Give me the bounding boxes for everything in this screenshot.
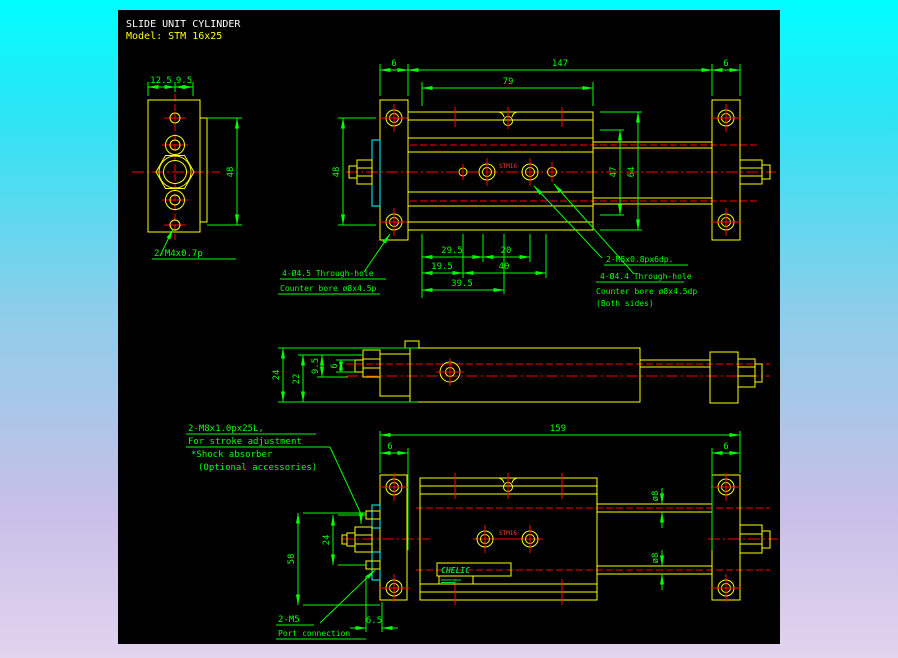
- dim-24-ports: 24: [322, 535, 332, 546]
- dim-20: 20: [501, 246, 512, 256]
- label-counterbore-right-2: Counter bore ø8x4.5dp: [596, 287, 697, 296]
- dim-24-side: 24: [272, 370, 282, 381]
- dim-6-5: 6.5: [366, 616, 382, 626]
- label-adjuster-2: For stroke adjustment: [188, 437, 302, 447]
- dim-48-end: 48: [226, 167, 236, 178]
- front-view: STM16: [278, 59, 776, 308]
- port-face-hatch: [372, 140, 380, 206]
- cad-canvas[interactable]: SLIDE UNIT CYLINDER Model: STM 16x25: [118, 10, 780, 644]
- port-face-hatch-lower: [372, 552, 380, 580]
- dim-6-left-bottom: 6: [387, 442, 392, 452]
- dim-159: 159: [550, 424, 566, 434]
- dim-64: 64: [627, 167, 637, 178]
- side-view: 24 22 9.5 6: [272, 341, 770, 403]
- dim-6-right: 6: [723, 59, 728, 69]
- body-marking: STM16: [499, 163, 517, 170]
- cylinder-body: [408, 112, 593, 230]
- dim-79: 79: [503, 77, 514, 87]
- label-counterbore-left-2: Counter bore ø8x4.5p: [280, 284, 377, 293]
- port-upper: [366, 511, 380, 519]
- dim-9-5: 9.5: [176, 76, 192, 86]
- dim-47: 47: [609, 167, 619, 178]
- label-counterbore-right-1: 4-Ø4.4 Through-hole: [600, 271, 692, 281]
- dim-29-5: 29.5: [441, 246, 463, 256]
- product-title: SLIDE UNIT CYLINDER: [126, 19, 241, 30]
- label-thread-m5: 2-M5x0.8px6dp.: [606, 255, 673, 264]
- label-counterbore-left-1: 4-Ø4.5 Through-hole: [282, 268, 374, 278]
- label-thread-m4: 2-M4x0.7p: [154, 249, 203, 259]
- dim-22: 22: [292, 374, 302, 385]
- dim-58: 58: [287, 554, 297, 565]
- label-adjuster-3: *Shock absorber: [191, 450, 273, 460]
- label-port-2: Port connection: [278, 629, 350, 638]
- drawing-title: SLIDE UNIT CYLINDER Model: STM 16x25: [126, 19, 241, 42]
- model-title: Model: STM 16x25: [126, 31, 222, 42]
- label-adjuster-1: 2-M8x1.0px25L,: [188, 424, 264, 434]
- slide-body-side: [410, 348, 640, 402]
- dim-rod-dia-top: ø8: [651, 491, 661, 502]
- barrel: [380, 354, 410, 396]
- brand-name: CHELIC: [441, 566, 470, 575]
- dim-19-5: 19.5: [431, 262, 453, 272]
- right-plate-side: [710, 352, 738, 403]
- dim-6-rod: 6: [330, 363, 340, 368]
- dim-39-5: 39.5: [451, 279, 473, 289]
- dim-40: 40: [499, 262, 510, 272]
- bottom-view: STM16 CHELIC: [186, 424, 778, 639]
- label-both-sides: (Both sides): [596, 299, 654, 308]
- dim-rod-dia-bottom: ø8: [651, 553, 661, 564]
- desktop-background: SLIDE UNIT CYLINDER Model: STM 16x25: [0, 0, 898, 658]
- cad-drawing: SLIDE UNIT CYLINDER Model: STM 16x25: [118, 10, 780, 644]
- dim-147: 147: [552, 59, 568, 69]
- dim-6-right-bottom: 6: [723, 442, 728, 452]
- body-marking-bottom: STM16: [499, 530, 517, 537]
- dim-48-front: 48: [332, 167, 342, 178]
- nameplate: CHELIC: [437, 563, 511, 584]
- label-port-1: 2-M5: [278, 615, 300, 625]
- end-plate: [148, 100, 200, 232]
- label-adjuster-4: (Optional accessories): [198, 463, 317, 473]
- port-lower: [366, 561, 380, 569]
- dim-12-5: 12.5: [150, 76, 172, 86]
- dim-6-left: 6: [391, 59, 396, 69]
- dim-9-5-side: 9.5: [311, 358, 321, 374]
- port-face-hatch-upper: [372, 505, 380, 528]
- end-view: 12.5 9.5 48 2-M4x0.7p: [132, 76, 242, 259]
